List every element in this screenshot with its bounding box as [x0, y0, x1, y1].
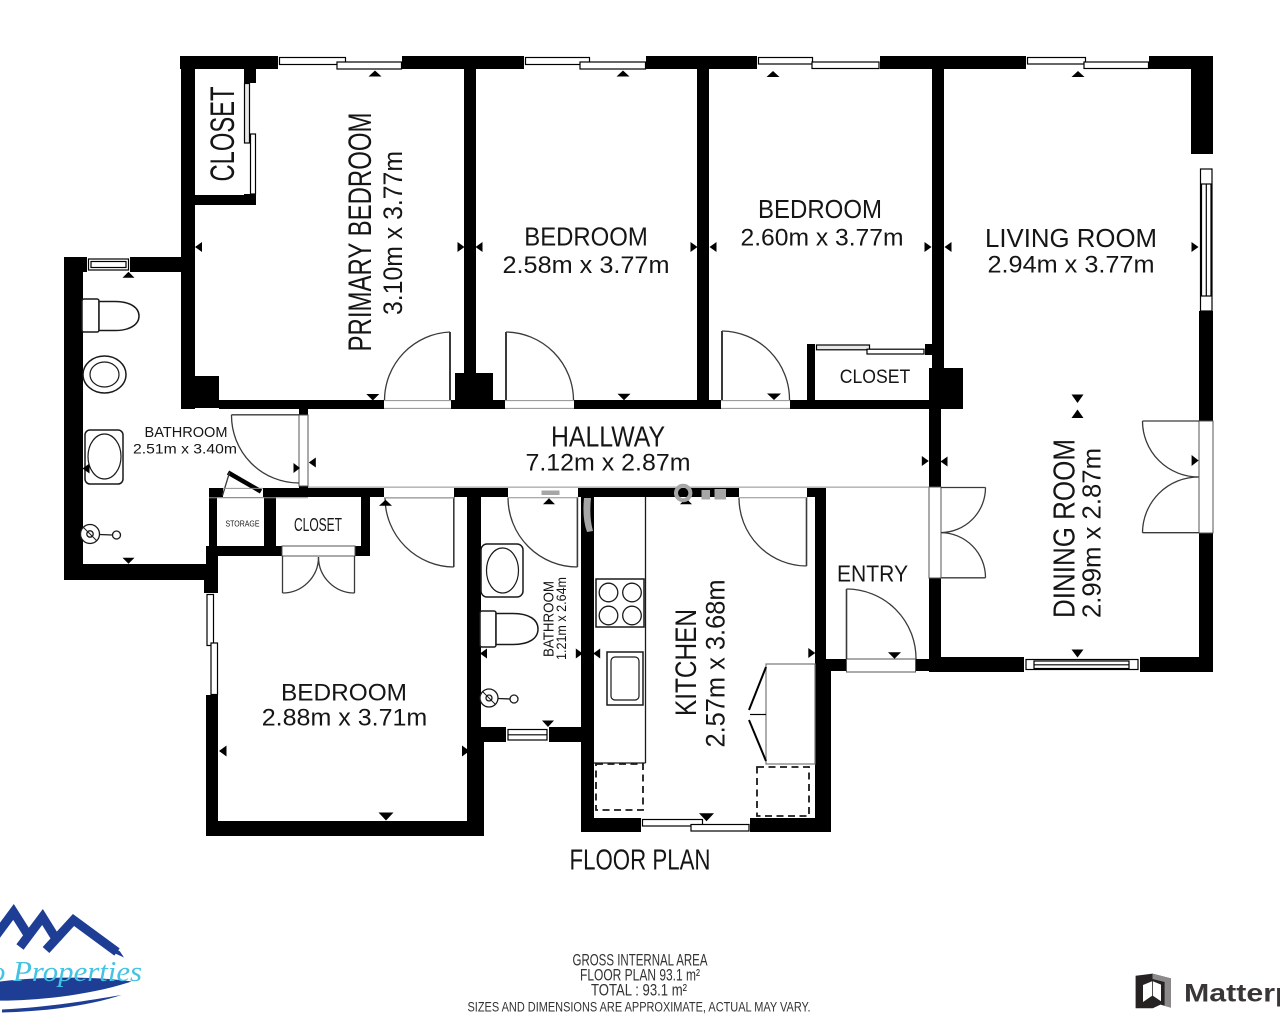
svg-text:2.51m x 3.40m: 2.51m x 3.40m: [133, 441, 237, 457]
svg-text:BEDROOM: BEDROOM: [281, 680, 407, 707]
svg-text:2.99m x 2.87m: 2.99m x 2.87m: [1077, 448, 1107, 618]
svg-text:2.57m x 3.68m: 2.57m x 3.68m: [701, 580, 731, 748]
svg-text:BEDROOM: BEDROOM: [524, 222, 648, 252]
svg-text:CLOSET: CLOSET: [840, 367, 911, 388]
svg-text:7.12m x 2.87m: 7.12m x 2.87m: [526, 450, 691, 477]
svg-text:Matterport: Matterport: [1184, 980, 1280, 1008]
svg-text:2.88m x 3.71m: 2.88m x 3.71m: [262, 705, 428, 732]
svg-text:STORAGE: STORAGE: [226, 519, 260, 529]
svg-text:CLOSET: CLOSET: [294, 515, 342, 535]
svg-text:BEDROOM: BEDROOM: [758, 194, 882, 224]
svg-text:CLOSET: CLOSET: [204, 87, 242, 182]
svg-text:LIVING ROOM: LIVING ROOM: [985, 223, 1157, 253]
svg-text:o Properties: o Properties: [0, 957, 142, 988]
svg-text:TOTAL : 93.1 m²: TOTAL : 93.1 m²: [591, 981, 687, 1000]
svg-text:PRIMARY BEDROOM: PRIMARY BEDROOM: [342, 113, 378, 352]
svg-text:SIZES AND DIMENSIONS ARE APPRO: SIZES AND DIMENSIONS ARE APPROXIMATE, AC…: [468, 1000, 811, 1015]
svg-text:ENTRY: ENTRY: [837, 561, 908, 587]
svg-text:FLOOR PLAN: FLOOR PLAN: [570, 845, 711, 877]
svg-text:2.94m x 3.77m: 2.94m x 3.77m: [988, 252, 1155, 279]
svg-text:BATHROOM: BATHROOM: [145, 424, 228, 441]
svg-text:2.60m x 3.77m: 2.60m x 3.77m: [741, 225, 904, 252]
svg-text:3.10m x 3.77m: 3.10m x 3.77m: [378, 151, 408, 315]
svg-text:1.21m x 2.64m: 1.21m x 2.64m: [554, 577, 569, 660]
svg-text:2.58m x 3.77m: 2.58m x 3.77m: [503, 252, 670, 279]
svg-text:KITCHEN: KITCHEN: [670, 609, 703, 716]
